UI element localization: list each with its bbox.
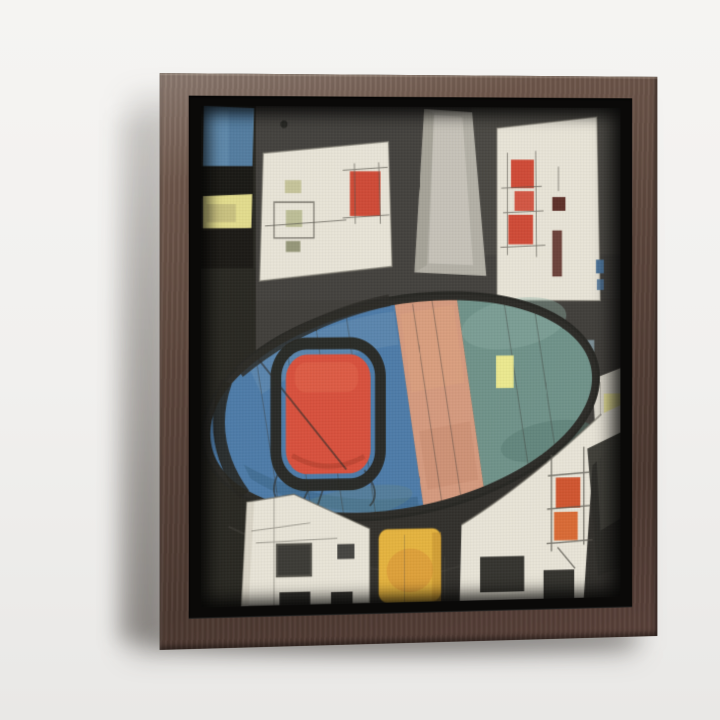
canvas xyxy=(201,106,620,608)
red-square-upper-left xyxy=(350,171,381,216)
left-edge-blocks xyxy=(201,106,254,268)
product-photo-stage: blue square at upper left edge pale yell… xyxy=(0,0,720,720)
yellow-square-in-teal xyxy=(496,355,514,388)
upper-left-white-panel xyxy=(260,141,393,281)
paint-dot xyxy=(280,120,287,128)
abstract-painting xyxy=(201,106,620,608)
olive-square xyxy=(285,180,301,193)
frame-face xyxy=(160,73,658,650)
red-square-a xyxy=(511,160,534,189)
blue-square xyxy=(203,106,254,170)
yellow-bar xyxy=(203,194,252,230)
scene xyxy=(0,0,720,720)
ladder-red-square xyxy=(556,477,580,508)
ladder-orange-square xyxy=(554,512,578,541)
lower-left-white-house xyxy=(241,493,369,606)
blue-dash xyxy=(596,260,604,274)
window xyxy=(544,569,575,598)
oval-blue-half xyxy=(201,299,424,549)
lower-center-gold-block xyxy=(379,528,441,603)
pencil-marks xyxy=(265,162,389,226)
pencil-square xyxy=(274,202,314,238)
window-small xyxy=(337,544,354,559)
maroon-square xyxy=(552,197,565,211)
pencil-marks xyxy=(251,496,337,606)
red-square-b xyxy=(515,191,534,211)
floater-gap xyxy=(189,96,632,619)
center-red-square xyxy=(256,343,381,536)
window xyxy=(480,556,524,592)
framed-canvas xyxy=(160,73,658,650)
red-square-ring xyxy=(276,343,381,486)
upper-right-white-panel xyxy=(497,116,604,301)
red-square-c xyxy=(508,215,533,245)
pencil-scribbles xyxy=(256,355,375,536)
window xyxy=(277,544,311,577)
maroon-bar xyxy=(552,230,562,276)
